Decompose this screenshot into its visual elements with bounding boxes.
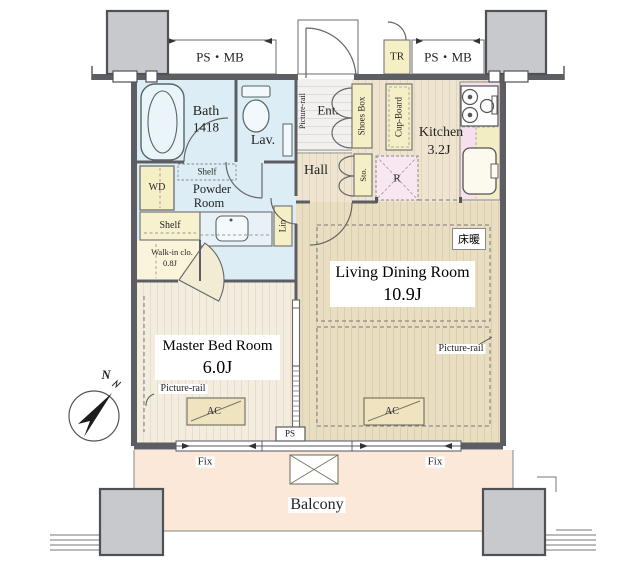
bath-label: Bath	[193, 105, 219, 119]
south-windows	[176, 441, 461, 451]
linen-label: Lin	[279, 220, 288, 233]
walkin-closet-label: Walk-in clo.	[151, 248, 193, 257]
ps-label: PS	[285, 430, 295, 439]
bedroom-name-band: Master Bed Room 6.0J	[155, 335, 280, 380]
pillar-top-right	[486, 11, 546, 74]
powder-room-label-1: Powder	[193, 183, 231, 196]
shelf-lower-label: Shelf	[159, 221, 180, 231]
vanity-icon	[200, 212, 272, 246]
bedroom-size-label: 6.0J	[203, 357, 233, 378]
kitchen-size-label: 3.2J	[428, 144, 451, 158]
living-size-label: 10.9J	[383, 284, 422, 305]
bathtub-icon	[141, 84, 184, 160]
fridge-space	[375, 156, 462, 203]
sink-icon	[463, 148, 498, 194]
storage-label: Sto.	[359, 168, 368, 181]
pillar-bottom-right	[483, 489, 545, 555]
hall-living-door	[310, 203, 352, 245]
pipe-space-wall	[276, 300, 305, 441]
pillar-bottom-left	[100, 489, 163, 555]
plan-linework	[0, 0, 640, 569]
entry-step-line	[296, 150, 352, 153]
washer-dryer-label: WD	[149, 183, 166, 193]
corridor-boxes	[164, 20, 484, 74]
shelf-upper-label: Shelf	[198, 168, 217, 177]
powder-room-label-2: Room	[194, 197, 225, 210]
hall-label: Hall	[304, 164, 328, 178]
ac-living-label: AC	[385, 407, 399, 417]
trunk-room-label: TR	[390, 52, 404, 63]
picture-rail-living-label: Picture-rail	[437, 344, 486, 354]
balcony-hatch-box	[290, 455, 338, 484]
ps-mb-right-label: PS・MB	[424, 51, 472, 64]
floor-heating-label: 床暖	[458, 231, 480, 247]
pillar-top-left	[107, 11, 168, 74]
compass-north-label: N	[101, 369, 110, 382]
fridge-label: R	[393, 174, 400, 185]
lav-label: Lav.	[251, 134, 275, 148]
living-room-label: Living Dining Room	[335, 264, 469, 282]
balcony-label: Balcony	[288, 497, 345, 513]
floor-heating-badge: 床暖	[452, 228, 486, 250]
bath-size-label: 1418	[193, 121, 219, 134]
floor-plan: PS・MB TR PS・MB Bath 1418 Lav. WD Shelf P…	[0, 0, 640, 569]
cup-board-label: Cup-Board	[395, 97, 404, 137]
bedroom-label: Master Bed Room	[163, 338, 273, 355]
picture-rail-bedroom-label: Picture-rail	[159, 384, 208, 394]
fix-right-label: Fix	[426, 457, 445, 468]
picture-rail-entry-label: Picture-rail	[299, 93, 307, 129]
kitchen-counter	[460, 82, 500, 200]
shoes-box-label: Shoes Box	[358, 97, 367, 136]
trunk-door	[388, 22, 406, 40]
storage-folding-door	[339, 156, 354, 196]
fix-left-label: Fix	[196, 457, 215, 468]
ps-mb-left-label: PS・MB	[196, 51, 244, 64]
shoes-folding-door	[332, 88, 352, 148]
kitchen-label: Kitchen	[419, 126, 463, 140]
walkin-size-label: 0.8J	[163, 259, 177, 268]
compass-icon	[69, 381, 121, 441]
entrance-label: Ent.	[317, 104, 338, 117]
stove-icon	[461, 86, 498, 126]
living-name-band: Living Dining Room 10.9J	[330, 261, 475, 307]
lav-door	[226, 162, 262, 198]
ac-bedroom-label: AC	[207, 407, 221, 417]
